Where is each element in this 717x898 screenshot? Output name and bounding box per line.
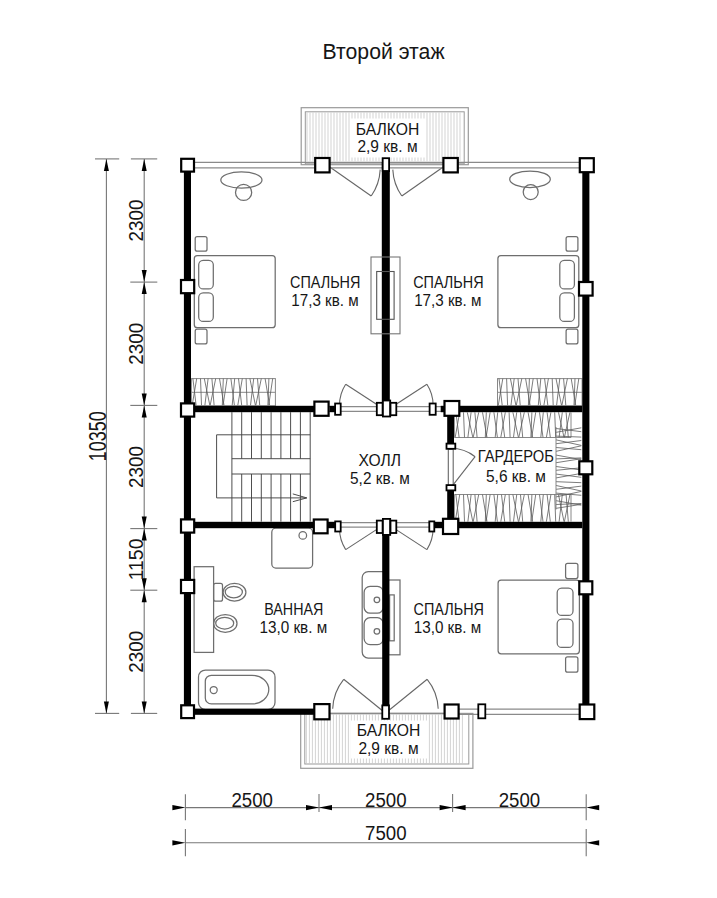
svg-text:ВАННАЯ: ВАННАЯ [264,600,323,618]
svg-text:СПАЛЬНЯ: СПАЛЬНЯ [414,600,484,618]
svg-text:5,2 кв. м: 5,2 кв. м [350,469,410,487]
svg-text:13,0 кв. м: 13,0 кв. м [414,618,482,636]
svg-text:5,6 кв. м: 5,6 кв. м [486,467,546,485]
svg-text:2300: 2300 [125,631,147,673]
svg-text:2,9 кв. м: 2,9 кв. м [358,739,418,757]
svg-text:2500: 2500 [499,789,541,811]
svg-text:СПАЛЬНЯ: СПАЛЬНЯ [290,273,360,291]
svg-text:СПАЛЬНЯ: СПАЛЬНЯ [413,273,483,291]
svg-text:17,3 кв. м: 17,3 кв. м [414,291,481,309]
svg-text:2500: 2500 [231,789,273,811]
svg-text:17,3 кв. м: 17,3 кв. м [291,291,358,309]
svg-text:2300: 2300 [125,200,147,242]
svg-text:2500: 2500 [365,789,407,811]
svg-text:2,9 кв. м: 2,9 кв. м [357,137,417,155]
svg-text:Второй этаж: Второй этаж [323,39,445,64]
svg-text:ГАРДЕРОБ: ГАРДЕРОБ [478,447,554,465]
svg-text:13,0 кв. м: 13,0 кв. м [259,618,327,636]
svg-text:1150: 1150 [125,539,147,581]
svg-text:БАЛКОН: БАЛКОН [356,120,420,138]
svg-text:7500: 7500 [365,822,407,844]
svg-text:10350: 10350 [85,411,111,461]
svg-text:2300: 2300 [125,323,147,365]
svg-text:ХОЛЛ: ХОЛЛ [359,451,401,469]
svg-text:БАЛКОН: БАЛКОН [357,721,421,739]
svg-text:2300: 2300 [125,446,147,488]
